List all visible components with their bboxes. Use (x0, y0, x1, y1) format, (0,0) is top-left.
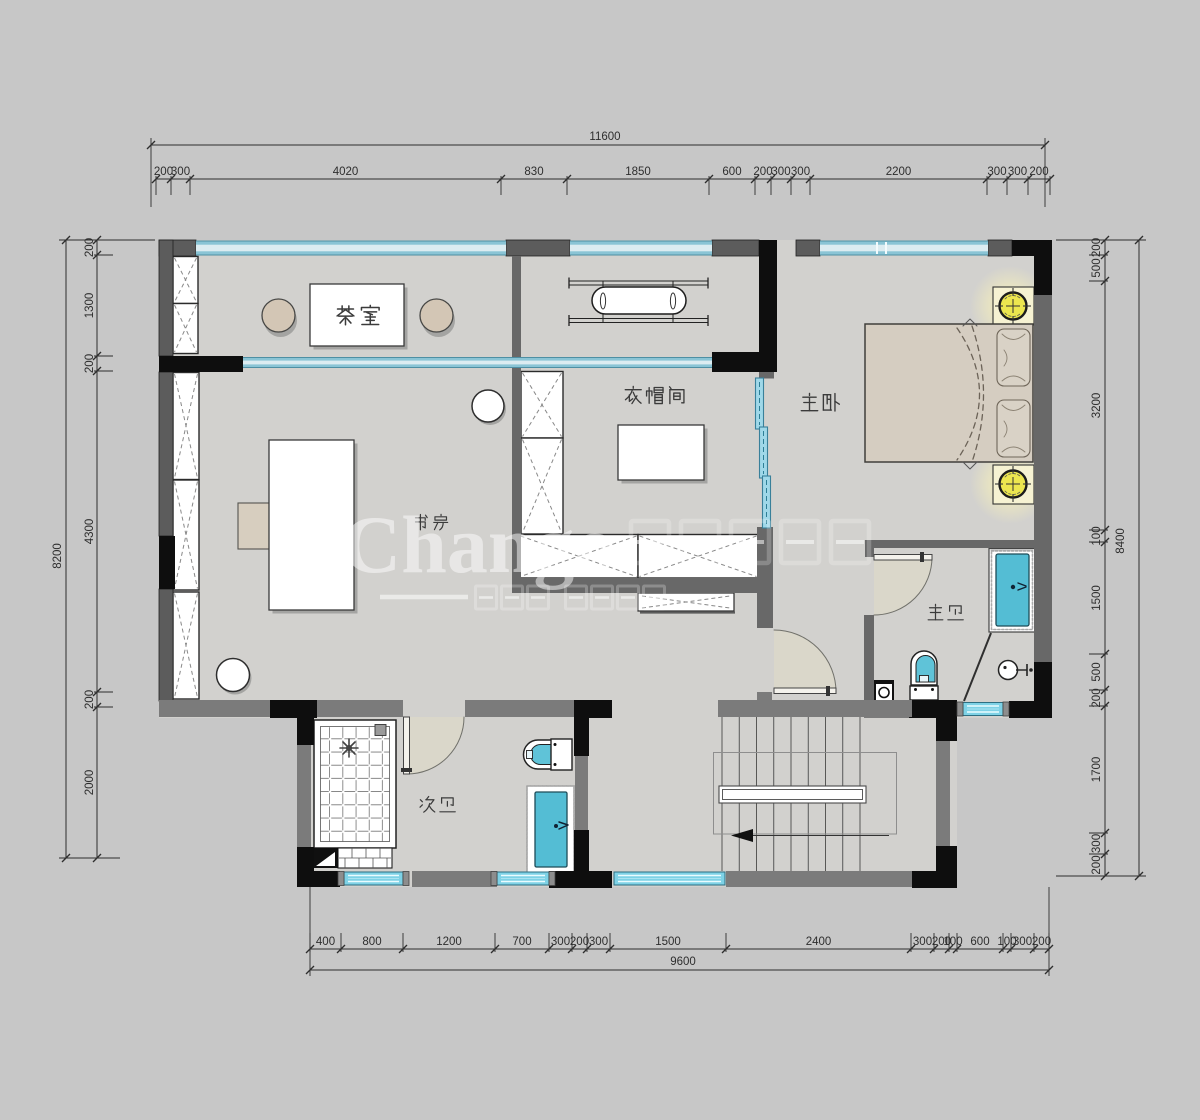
svg-text:200: 200 (1091, 238, 1103, 257)
svg-text:1500: 1500 (655, 936, 681, 948)
svg-text:300: 300 (791, 166, 810, 178)
svg-text:11600: 11600 (589, 131, 620, 143)
svg-text:1700: 1700 (1091, 757, 1103, 783)
svg-text:9600: 9600 (670, 956, 696, 968)
svg-text:100: 100 (1091, 526, 1103, 545)
svg-text:200: 200 (84, 690, 96, 709)
svg-text:2400: 2400 (806, 936, 832, 948)
svg-text:300: 300 (771, 166, 790, 178)
svg-text:700: 700 (512, 936, 531, 948)
svg-text:3200: 3200 (1091, 393, 1103, 419)
svg-text:100: 100 (943, 936, 962, 948)
svg-text:4300: 4300 (84, 519, 96, 545)
svg-text:1850: 1850 (625, 166, 651, 178)
svg-text:200: 200 (753, 166, 772, 178)
svg-text:300: 300 (913, 936, 932, 948)
svg-text:500: 500 (1091, 258, 1103, 277)
svg-text:4020: 4020 (333, 166, 359, 178)
svg-text:200: 200 (1029, 166, 1048, 178)
svg-text:200: 200 (1091, 855, 1103, 874)
svg-text:300: 300 (589, 936, 608, 948)
svg-text:600: 600 (722, 166, 741, 178)
svg-text:300: 300 (1013, 936, 1032, 948)
svg-text:200: 200 (1091, 688, 1103, 707)
svg-text:500: 500 (1091, 662, 1103, 681)
svg-text:Chango: Chango (342, 499, 615, 590)
svg-text:400: 400 (316, 936, 335, 948)
svg-text:300: 300 (551, 936, 570, 948)
svg-text:600: 600 (970, 936, 989, 948)
svg-text:200: 200 (570, 936, 589, 948)
svg-text:200: 200 (84, 354, 96, 373)
svg-text:1200: 1200 (436, 936, 462, 948)
svg-text:8200: 8200 (52, 543, 64, 569)
svg-text:830: 830 (524, 166, 543, 178)
svg-text:800: 800 (362, 936, 381, 948)
svg-text:300: 300 (171, 166, 190, 178)
svg-text:200: 200 (84, 238, 96, 257)
svg-text:300: 300 (987, 166, 1006, 178)
svg-text:8400: 8400 (1115, 528, 1127, 554)
svg-text:2000: 2000 (84, 770, 96, 796)
svg-text:1500: 1500 (1091, 585, 1103, 611)
svg-text:2200: 2200 (886, 166, 912, 178)
svg-text:1300: 1300 (84, 293, 96, 319)
svg-text:300: 300 (1008, 166, 1027, 178)
svg-text:300: 300 (1091, 834, 1103, 853)
svg-text:200: 200 (1032, 936, 1051, 948)
